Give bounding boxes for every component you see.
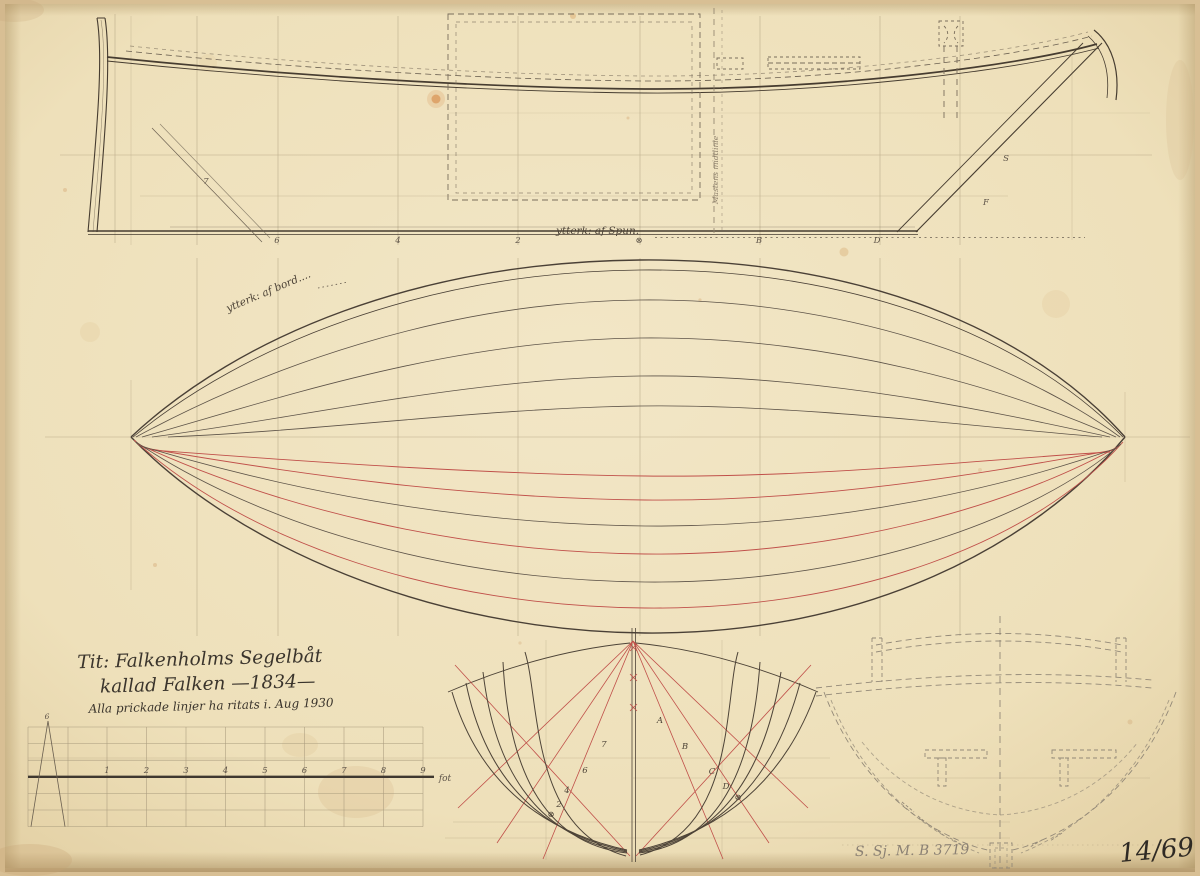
station-label: 2 — [514, 236, 520, 246]
scale-number: 6 — [302, 766, 308, 776]
station-label: 6 — [274, 236, 280, 246]
section-label: ⊗ — [734, 793, 741, 803]
scale-number: 2 — [143, 766, 149, 776]
section-label: B — [681, 742, 688, 752]
station-label: B — [755, 236, 762, 246]
scale-number: 5 — [262, 766, 267, 776]
scale-number: 1 — [104, 766, 109, 776]
station-label: 4 — [394, 236, 400, 246]
scale-number: 8 — [381, 766, 387, 776]
title-block: Tit: Falkenholms Segelbåt kallad Falken … — [77, 645, 334, 717]
section-label: C — [709, 767, 716, 777]
section-label: D — [722, 782, 730, 792]
section-label: 4 — [563, 786, 569, 796]
lines-drawing-canvas: Tit: Falkenholms Segelbåt kallad Falken … — [0, 0, 1200, 876]
station-label: ⊗ — [635, 236, 642, 246]
section-label: ⊗ — [547, 810, 554, 820]
paper-background — [0, 0, 1200, 876]
stern-station-label-f: F — [982, 198, 990, 208]
section-label: 2 — [555, 800, 561, 810]
drawing-sheet: Tit: Falkenholms Segelbåt kallad Falken … — [0, 0, 1200, 876]
annotation-mast: Mastens midtlinie — [711, 135, 720, 205]
scale-number: 3 — [183, 766, 188, 776]
stern-station-label-s: S — [1003, 154, 1009, 164]
section-label: 6 — [582, 766, 588, 776]
scale-unit: fot — [438, 774, 452, 784]
scale-number: 7 — [341, 766, 347, 776]
annotation-rabbet: ytterk: af Spun. — [555, 225, 639, 237]
scale-fine-division: 6 — [45, 712, 50, 721]
section-label: A — [656, 716, 663, 726]
scale-number: 4 — [222, 766, 228, 776]
scale-number: 9 — [420, 766, 426, 776]
section-label: 7 — [601, 740, 607, 750]
archive-number: S. Sj. M. B 3719 — [855, 842, 970, 860]
station-label: D — [873, 236, 881, 246]
bow-station-label: 7 — [203, 177, 209, 187]
